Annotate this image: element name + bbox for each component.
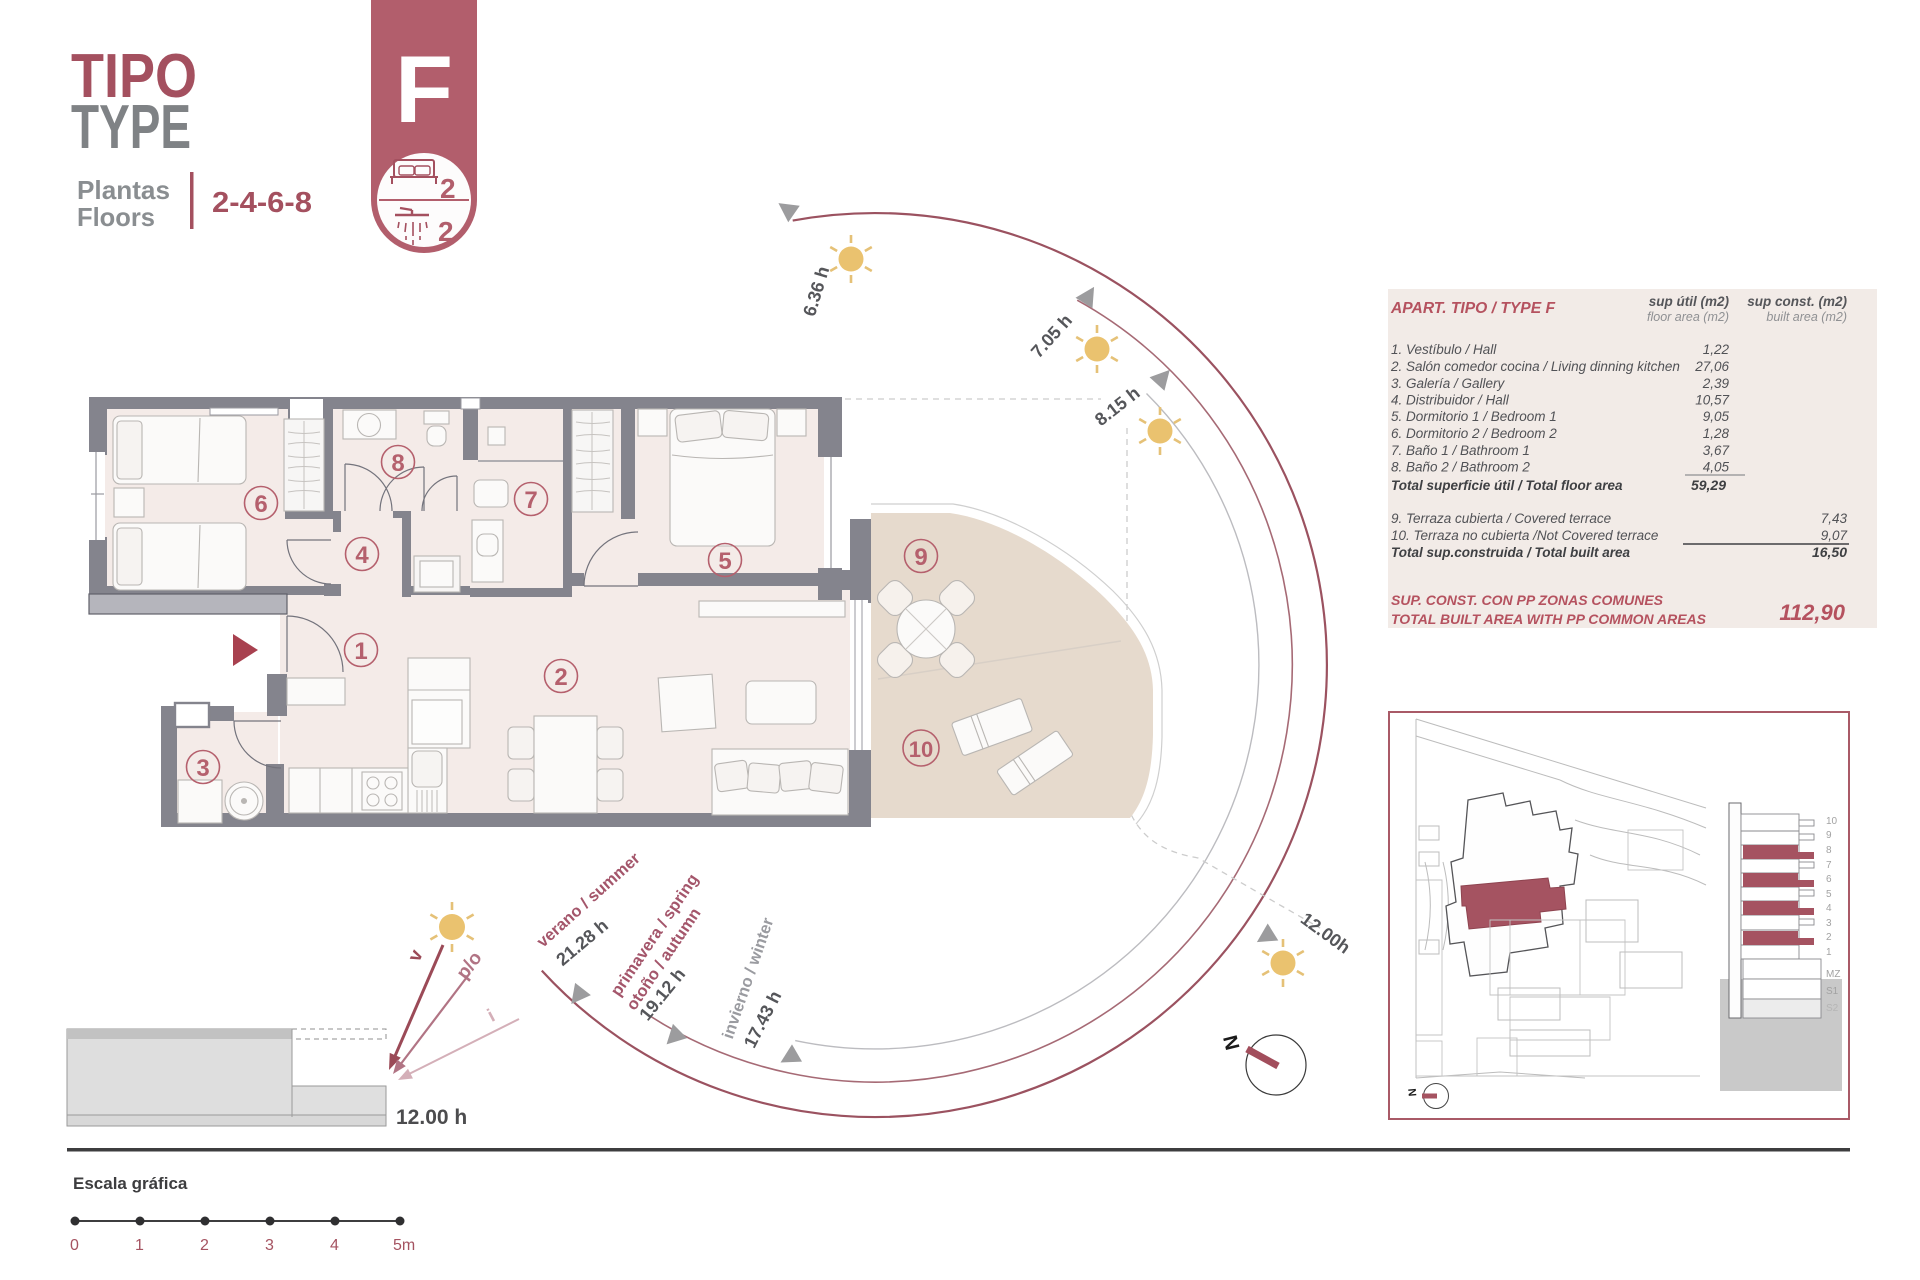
svg-text:2,39: 2,39 — [1702, 376, 1730, 391]
svg-text:TOTAL BUILT AREA WITH PP COMMO: TOTAL BUILT AREA WITH PP COMMON AREAS — [1391, 611, 1707, 627]
svg-text:SUP. CONST. CON PP ZONAS COMUN: SUP. CONST. CON PP ZONAS COMUNES — [1391, 592, 1664, 608]
svg-text:12.00 h: 12.00 h — [396, 1106, 467, 1129]
svg-text:S1: S1 — [1826, 986, 1839, 997]
svg-text:5: 5 — [718, 548, 731, 575]
svg-text:2. Salón comedor cocina / Livi: 2. Salón comedor cocina / Living dinning… — [1390, 359, 1680, 374]
svg-text:0: 0 — [70, 1237, 79, 1254]
svg-text:1,28: 1,28 — [1703, 426, 1730, 441]
svg-text:10: 10 — [1826, 816, 1838, 827]
svg-text:MZ: MZ — [1826, 969, 1840, 980]
svg-text:9: 9 — [914, 544, 927, 571]
svg-text:built area (m2): built area (m2) — [1766, 310, 1847, 324]
svg-text:4: 4 — [355, 542, 369, 569]
svg-text:1. Vestíbulo / Hall: 1. Vestíbulo / Hall — [1391, 342, 1497, 357]
svg-text:8: 8 — [391, 450, 404, 477]
svg-text:3. Galería / Gallery: 3. Galería / Gallery — [1391, 376, 1506, 391]
svg-text:4. Distribuidor / Hall: 4. Distribuidor / Hall — [1391, 393, 1510, 408]
svg-text:3: 3 — [196, 755, 209, 782]
svg-text:TYPE: TYPE — [71, 93, 191, 162]
svg-text:3,67: 3,67 — [1703, 443, 1730, 458]
svg-text:5: 5 — [1826, 889, 1832, 900]
svg-text:4,05: 4,05 — [1703, 460, 1730, 475]
svg-text:6. Dormitorio 2 / Bedroom 2: 6. Dormitorio 2 / Bedroom 2 — [1391, 426, 1557, 441]
svg-text:8. Baño 2 / Bathroom 2: 8. Baño 2 / Bathroom 2 — [1391, 460, 1530, 475]
svg-text:4: 4 — [330, 1237, 339, 1254]
svg-text:3: 3 — [265, 1237, 274, 1254]
svg-text:6: 6 — [1826, 874, 1832, 885]
svg-text:2: 2 — [1826, 932, 1832, 943]
svg-text:27,06: 27,06 — [1694, 359, 1729, 374]
svg-text:Plantas: Plantas — [77, 175, 170, 205]
svg-text:7,43: 7,43 — [1821, 511, 1848, 526]
svg-text:10. Terraza no cubierta /Not C: 10. Terraza no cubierta /Not Covered ter… — [1391, 528, 1658, 543]
svg-text:5m: 5m — [393, 1237, 415, 1254]
svg-text:Total sup.construida / Total b: Total sup.construida / Total built area — [1391, 545, 1631, 560]
svg-text:10: 10 — [909, 737, 933, 762]
svg-text:2: 2 — [554, 664, 567, 691]
svg-text:1: 1 — [1826, 947, 1832, 958]
svg-text:8: 8 — [1826, 845, 1832, 856]
svg-text:7: 7 — [524, 487, 537, 514]
svg-text:2: 2 — [200, 1237, 209, 1254]
svg-text:2-4-6-8: 2-4-6-8 — [212, 187, 312, 219]
svg-text:F: F — [395, 37, 453, 143]
svg-text:7: 7 — [1826, 860, 1832, 871]
svg-text:S2: S2 — [1826, 1003, 1839, 1014]
svg-text:9. Terraza cubierta / Covered: 9. Terraza cubierta / Covered terrace — [1391, 511, 1611, 526]
svg-text:6: 6 — [254, 491, 267, 518]
svg-text:Escala gráfica: Escala gráfica — [73, 1174, 188, 1193]
svg-text:16,50: 16,50 — [1812, 544, 1847, 560]
svg-text:9,05: 9,05 — [1703, 409, 1730, 424]
svg-text:10,57: 10,57 — [1695, 393, 1729, 408]
svg-text:APART. TIPO / TYPE F: APART. TIPO / TYPE F — [1390, 300, 1556, 317]
svg-text:Floors: Floors — [77, 202, 155, 232]
svg-text:sup const. (m2): sup const. (m2) — [1747, 294, 1847, 309]
svg-text:sup útil (m2): sup útil (m2) — [1649, 294, 1730, 309]
svg-text:5. Dormitorio 1 / Bedroom 1: 5. Dormitorio 1 / Bedroom 1 — [1391, 409, 1557, 424]
svg-text:floor area (m2): floor area (m2) — [1647, 310, 1729, 324]
svg-text:59,29: 59,29 — [1691, 477, 1726, 493]
svg-text:4: 4 — [1826, 903, 1832, 914]
svg-text:9: 9 — [1826, 830, 1832, 841]
svg-text:2: 2 — [440, 173, 456, 204]
svg-text:112,90: 112,90 — [1779, 600, 1845, 625]
svg-text:1,22: 1,22 — [1703, 342, 1730, 357]
svg-text:1: 1 — [135, 1237, 144, 1254]
svg-text:2: 2 — [438, 216, 454, 247]
svg-text:7. Baño 1 / Bathroom 1: 7. Baño 1 / Bathroom 1 — [1391, 443, 1530, 458]
svg-text:9,07: 9,07 — [1821, 528, 1848, 543]
svg-text:1: 1 — [354, 638, 367, 665]
svg-text:Total superficie útil / Total: Total superficie útil / Total floor area — [1391, 478, 1623, 493]
svg-text:3: 3 — [1826, 918, 1832, 929]
svg-text:N: N — [1407, 1088, 1420, 1097]
